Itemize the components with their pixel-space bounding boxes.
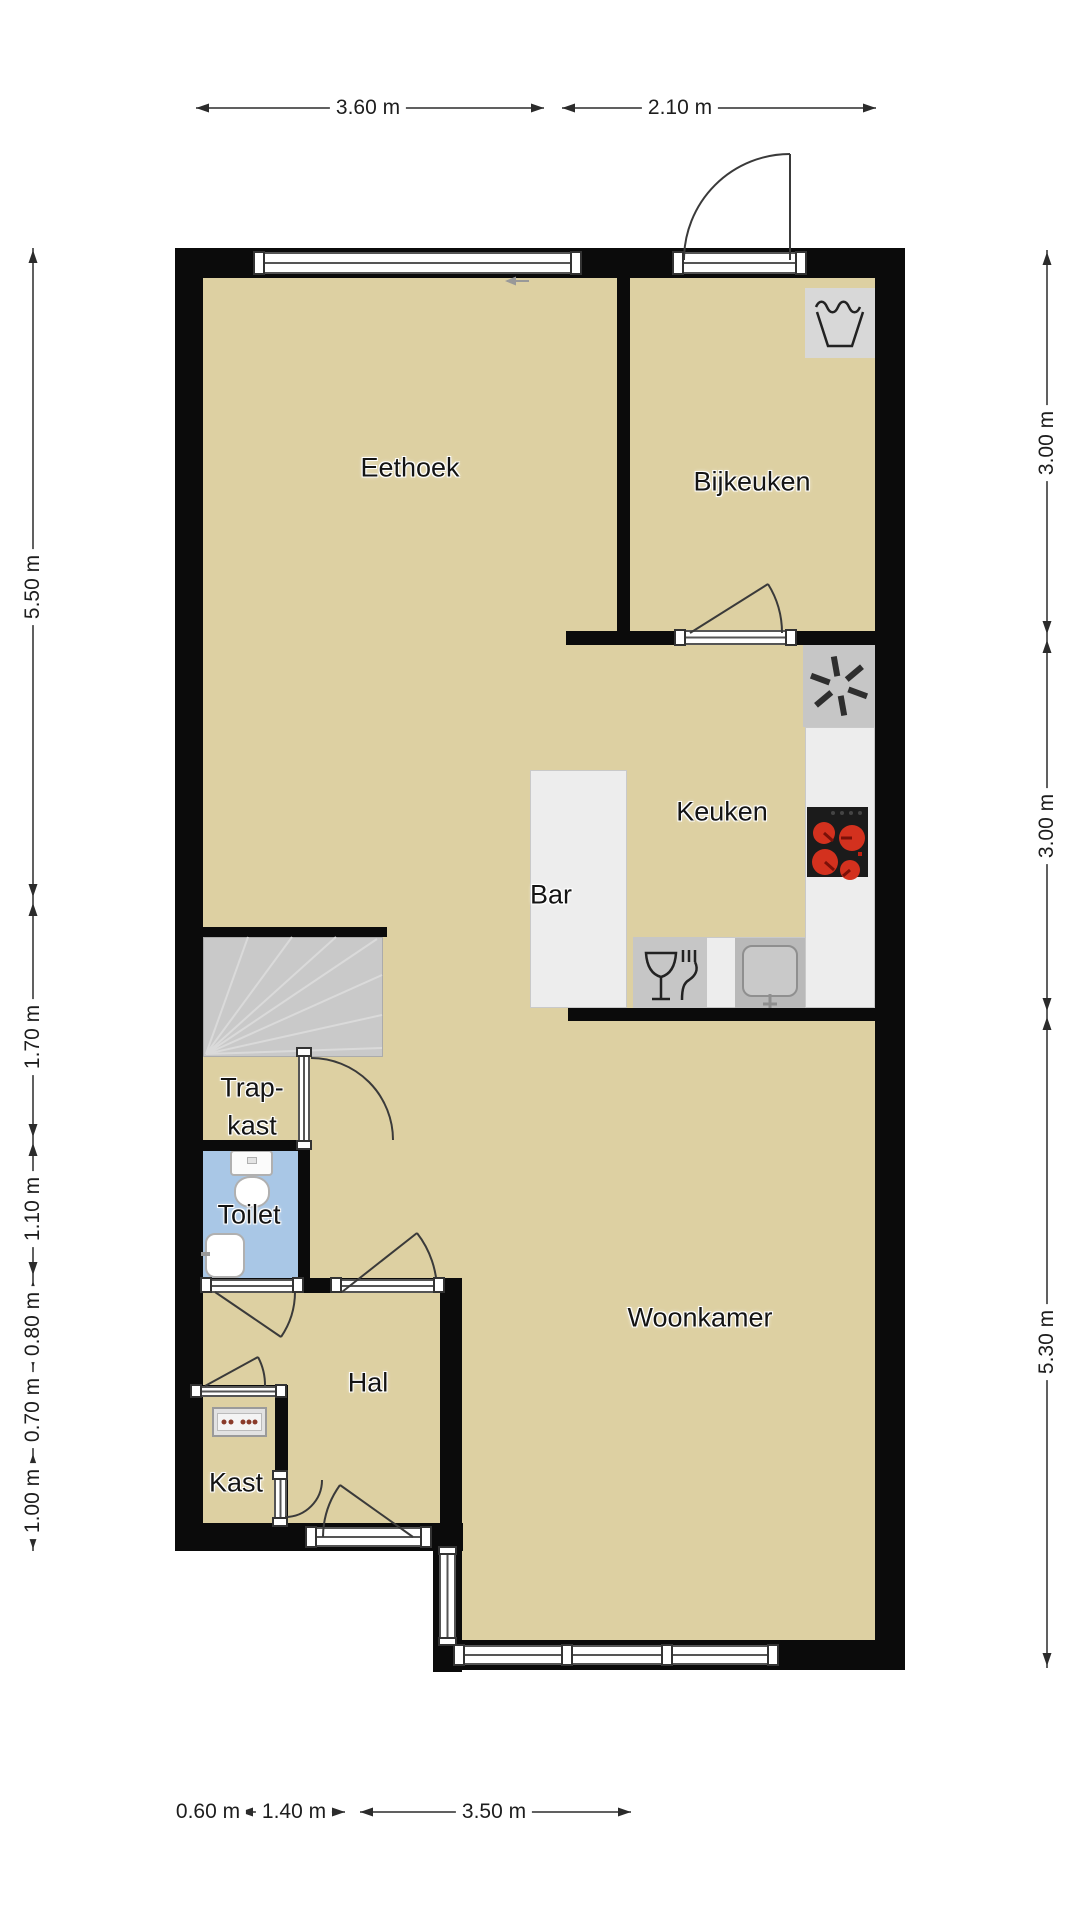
window-jamb [767, 1644, 779, 1666]
dim-bottom-2: 1.40 m [256, 1800, 332, 1824]
entry-door-threshold [684, 252, 795, 274]
window-mullion [661, 1644, 673, 1666]
dim-left-6: 1.00 m [21, 1463, 45, 1539]
door-jamb [305, 1526, 317, 1548]
door-jamb [795, 251, 807, 275]
room-label-eethoek: Eethoek [360, 453, 459, 484]
toilet-flush-button [247, 1157, 257, 1164]
dim-left-5: 0.70 m [21, 1372, 45, 1448]
dim-right-3: 5.30 m [1035, 1304, 1059, 1380]
hal-door-threshold [342, 1279, 433, 1293]
window-jamb [453, 1644, 465, 1666]
dim-top-1: 3.60 m [330, 96, 406, 120]
wall-trapkast-bottom [175, 1140, 310, 1151]
room-label-trapkast-line1: Trap- [220, 1073, 284, 1104]
sink-basin [742, 945, 798, 997]
dim-left-1: 5.50 m [21, 549, 45, 625]
door-jamb [330, 1277, 342, 1293]
dim-right-1: 3.00 m [1035, 405, 1059, 481]
door-jamb [275, 1384, 287, 1398]
dim-left-4: 0.80 m [21, 1286, 45, 1362]
wall-stairs-stub [203, 927, 387, 937]
floor-woonkamer-extension [462, 1523, 875, 1640]
room-label-bar: Bar [530, 880, 572, 911]
floor-plan-page: Eethoek Bijkeuken Keuken Bar Trap- kast … [0, 0, 1080, 1920]
window-step [439, 1555, 456, 1637]
room-label-hal: Hal [348, 1368, 389, 1399]
room-label-bijkeuken: Bijkeuken [693, 467, 810, 498]
kast-door-threshold [202, 1386, 275, 1397]
wall-right [875, 248, 905, 1670]
wall-bijkeuken-bottom-left [566, 631, 686, 645]
front-door-threshold [317, 1527, 420, 1547]
wall-left [175, 248, 203, 1551]
wall-bijkeuken-bottom-right [785, 631, 877, 645]
bijkeuken-door-threshold [686, 630, 785, 645]
washing-machine-icon [805, 288, 875, 358]
entry-door-arc [684, 154, 790, 260]
door-jamb [785, 629, 797, 646]
window-top [265, 252, 570, 274]
window-jamb [253, 251, 265, 275]
wall-hal-woonkamer [440, 1278, 462, 1528]
extractor-fan-icon [803, 644, 875, 727]
dim-left-2: 1.70 m [21, 999, 45, 1075]
window-front [465, 1645, 767, 1665]
wall-eethoek-bijkeuken [617, 278, 630, 636]
door-jamb [272, 1517, 288, 1527]
stove-icon [807, 807, 868, 877]
trapkast-door-threshold [298, 1057, 310, 1140]
door-jamb [433, 1277, 445, 1293]
dim-bottom-1: 0.60 m [170, 1800, 246, 1824]
room-label-trapkast-line2: kast [227, 1111, 277, 1142]
door-jamb [296, 1140, 312, 1150]
dishwasher-icon [633, 937, 707, 1008]
room-label-toilet: Toilet [217, 1200, 280, 1231]
kast-side-door-threshold [274, 1480, 287, 1517]
dim-left-3: 1.10 m [21, 1171, 45, 1247]
door-jamb [190, 1384, 202, 1398]
door-jamb [296, 1047, 312, 1057]
washbasin-icon [205, 1233, 245, 1278]
stairs-icon [203, 937, 383, 1057]
room-label-woonkamer: Woonkamer [627, 1303, 772, 1334]
room-label-keuken: Keuken [676, 797, 768, 828]
room-label-kast: Kast [209, 1468, 263, 1499]
door-jamb [200, 1277, 212, 1293]
washbasin-faucet [201, 1252, 210, 1256]
window-jamb [570, 251, 582, 275]
window-jamb [438, 1546, 457, 1555]
door-jamb [674, 629, 686, 646]
door-jamb [292, 1277, 304, 1293]
toilet-door-threshold [212, 1279, 292, 1293]
door-jamb [420, 1526, 432, 1548]
wall-keuken-woonkamer [568, 1008, 905, 1021]
dim-right-2: 3.00 m [1035, 788, 1059, 864]
door-jamb [672, 251, 684, 275]
door-jamb [272, 1470, 288, 1480]
window-mullion [561, 1644, 573, 1666]
wall-toilet-right [298, 1142, 310, 1293]
dim-bottom-3: 3.50 m [456, 1800, 532, 1824]
dim-top-2: 2.10 m [642, 96, 718, 120]
meter-cabinet-panel [217, 1413, 262, 1431]
